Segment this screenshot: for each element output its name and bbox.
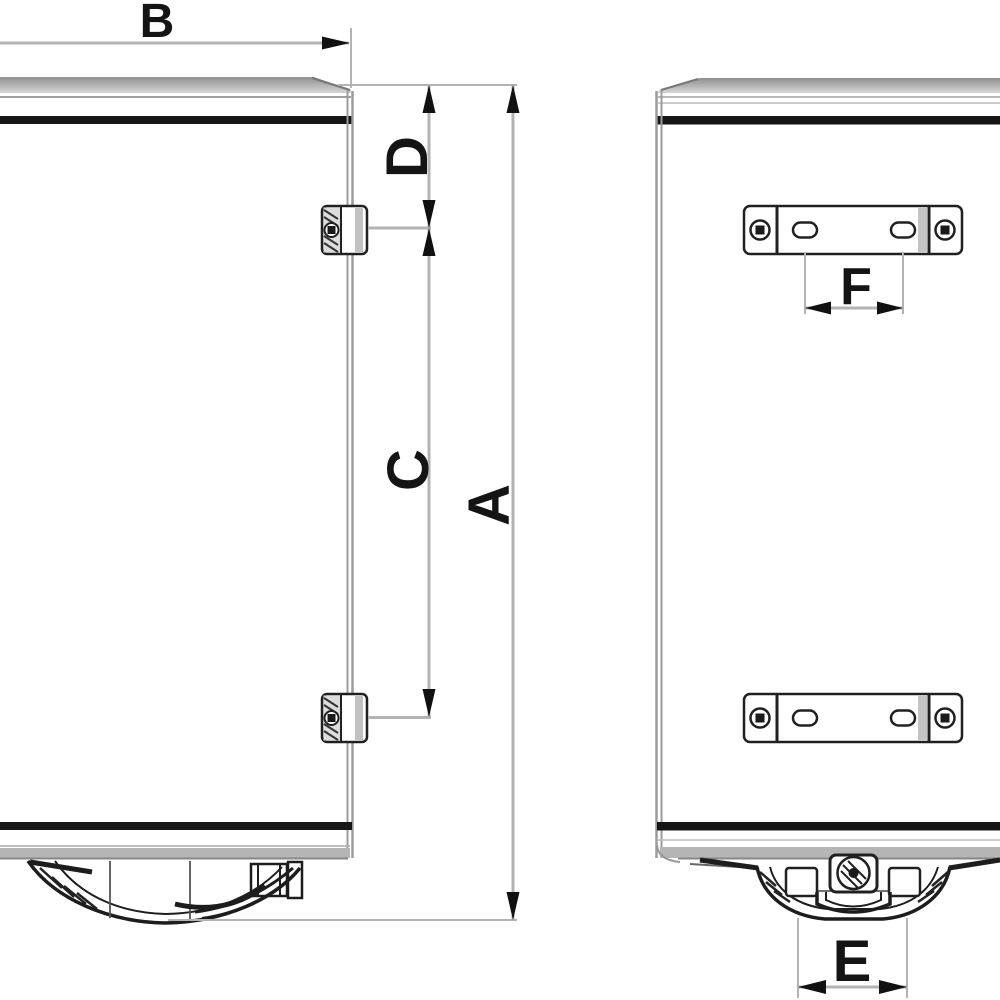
top-cap-band	[0, 77, 351, 93]
bottom-weld-band	[0, 822, 352, 830]
dim-label-f: F	[840, 258, 872, 316]
top-weld-band	[657, 116, 1000, 125]
bottom-cap-band	[0, 848, 350, 858]
arrowhead-c-up	[423, 228, 436, 256]
heating-element-dome	[700, 855, 1000, 919]
dim-label-b: B	[140, 0, 175, 48]
dome-left-rim	[30, 862, 92, 872]
bracket-bolt-head	[328, 714, 336, 722]
top-cap-band	[658, 78, 1000, 93]
dim-label-d: D	[375, 136, 440, 178]
mounting-bracket-rear-upper	[744, 206, 962, 254]
bracket-bolt-left-head	[756, 714, 765, 723]
bracket-bolt-right-head	[941, 226, 950, 235]
rear-view	[657, 78, 1000, 919]
arrowhead-c-down	[423, 689, 436, 717]
dimension-f: F	[805, 252, 903, 316]
dome-right-tab	[949, 860, 1000, 868]
dimension-a: A	[457, 85, 522, 920]
wall-bracket-side-upper	[322, 206, 367, 254]
arrowhead-d-down	[423, 200, 436, 228]
dome-slot-right	[889, 868, 920, 896]
dimension-c: C	[376, 228, 441, 717]
dimension-d: D	[375, 85, 440, 228]
wall-bracket-side-lower	[322, 694, 367, 742]
bracket-shadow-band	[355, 208, 363, 252]
bracket-bolt-head	[328, 226, 336, 234]
bracket-slot-left	[793, 223, 817, 238]
arrowhead-d-up	[423, 85, 436, 113]
bottom-cap-band	[660, 847, 1000, 858]
water-heater-dimension-diagram: B D C A F	[0, 0, 1000, 1000]
arrowhead-f-left	[805, 302, 831, 315]
bracket-fold-shadow	[918, 208, 927, 252]
bottom-weld-band	[657, 822, 1000, 831]
side-view	[0, 77, 367, 923]
dome-slot-left	[786, 868, 817, 896]
mounting-bracket-rear-lower	[744, 694, 962, 742]
arrowhead-b-right	[322, 37, 350, 50]
bracket-slot-right	[891, 711, 915, 726]
arrowhead-a-up	[507, 85, 520, 113]
dim-label-a: A	[457, 484, 522, 526]
bottom-dome-side	[28, 861, 302, 923]
dim-label-c: C	[376, 449, 441, 491]
dimension-b: B	[0, 0, 350, 50]
bracket-shadow-band	[355, 696, 363, 740]
bracket-slot-left	[793, 711, 817, 726]
bracket-bolt-left-head	[756, 226, 765, 235]
element-u-bracket-inner	[826, 892, 881, 907]
arrowhead-e-left	[798, 980, 826, 994]
bracket-bolt-right-head	[941, 714, 950, 723]
diagram-canvas: B D C A F	[0, 0, 1000, 1000]
dimension-e: E	[798, 918, 907, 998]
arrowhead-e-right	[879, 980, 907, 994]
element-center-bolt	[849, 868, 859, 878]
dim-label-e: E	[833, 929, 872, 994]
top-weld-band	[0, 116, 352, 124]
bracket-fold-shadow	[918, 696, 927, 740]
arrowhead-f-right	[877, 302, 903, 315]
bracket-slot-right	[891, 223, 915, 238]
arrowhead-a-down	[507, 892, 520, 920]
